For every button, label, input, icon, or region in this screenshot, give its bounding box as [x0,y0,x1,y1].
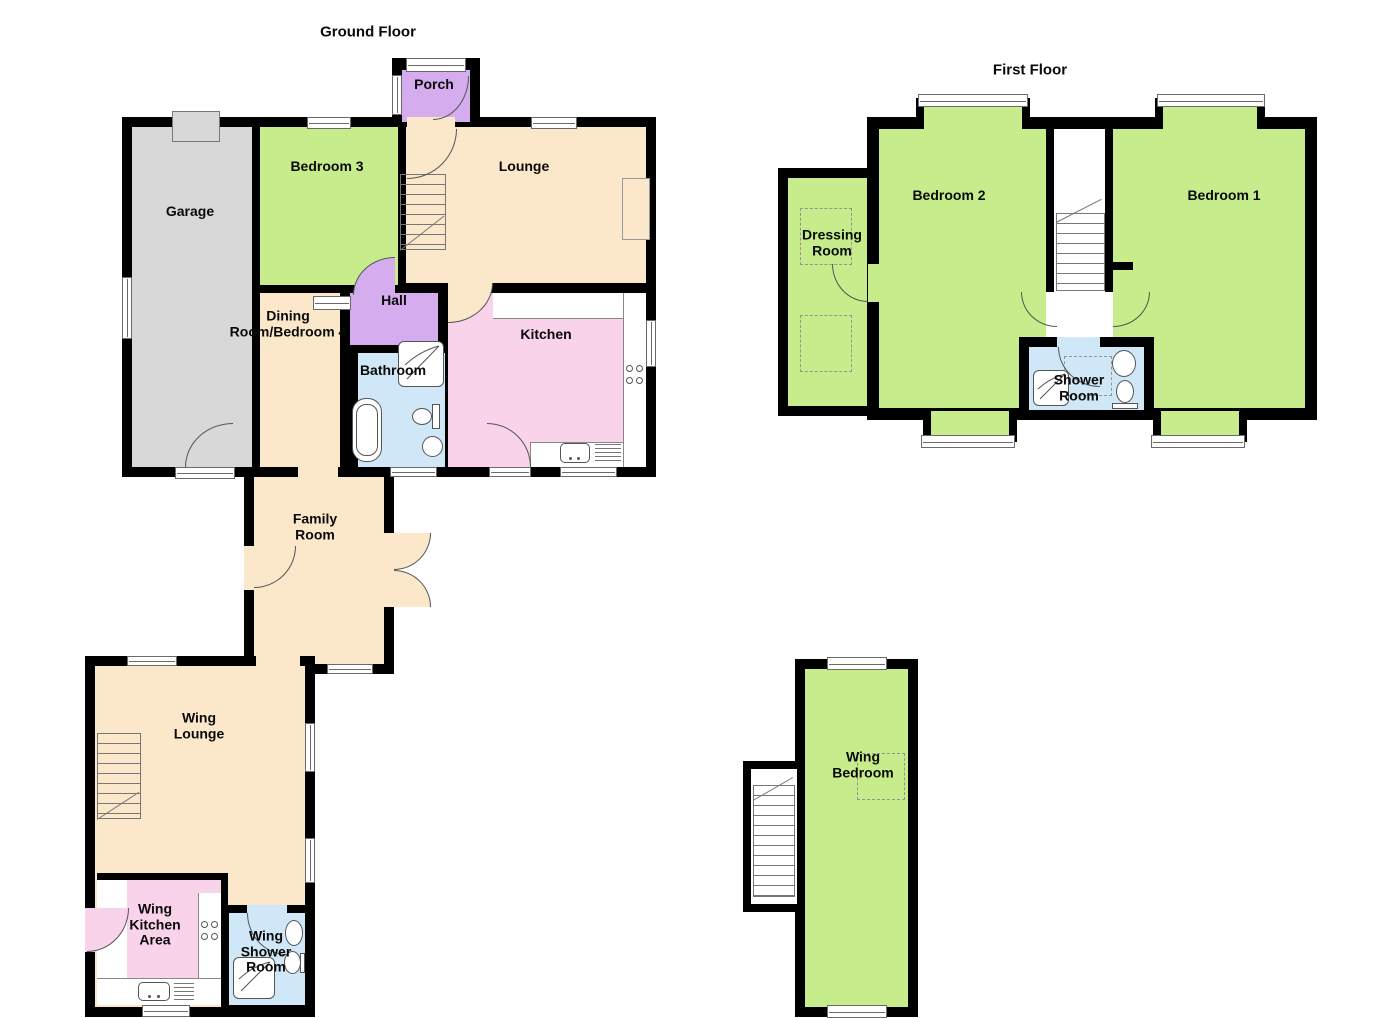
label-lounge: Lounge [499,159,550,175]
toilet-tank-icon [1112,403,1138,409]
window [305,723,315,772]
wardrobe-dashed [800,315,852,372]
opening-dressing [868,264,880,302]
label-porch: Porch [414,77,454,93]
porch-opening [407,117,455,129]
window [531,117,577,129]
bay-window [918,94,1028,107]
window [390,467,437,477]
fireplace [622,178,650,240]
window [327,664,373,674]
opening-dining-family [298,467,338,481]
french-door-arc [394,570,431,607]
kitchen-counter-top [493,293,623,319]
label-garage: Garage [166,204,214,220]
label-bedroom2: Bedroom 2 [912,188,985,204]
label-shower-room: Shower Room [1054,372,1105,403]
window [307,117,351,129]
opening-family-wing [256,656,300,678]
bathtub-icon [352,398,382,462]
opening-landing-bed1 [1105,292,1113,337]
room-wing-bedroom [805,669,908,1007]
stairs-wing [97,733,141,819]
label-wing-bedroom: Wing Bedroom [832,749,893,780]
room-garage [132,127,252,467]
window [127,656,177,666]
floor-plan: Ground Floor First Floor Porch Garage Be… [0,0,1400,1018]
label-bedroom3: Bedroom 3 [290,159,363,175]
opening-family-left [244,546,254,590]
drainer-icon [595,444,621,462]
toilet-icon [412,408,432,425]
stove-icon [625,364,645,390]
stove-icon [200,920,220,946]
window [406,58,466,72]
garage-door-threshold [175,467,235,479]
window [142,1005,190,1017]
first-floor-title: First Floor [993,63,1067,80]
window [392,75,402,115]
window [122,277,132,339]
label-family: Family Room [293,511,337,542]
bay-window [1157,94,1265,107]
label-bathroom: Bathroom [360,363,426,379]
ground-floor-title: Ground Floor [320,25,416,42]
label-kitchen: Kitchen [520,327,571,343]
toilet-tank-icon [300,953,305,973]
toilet-icon [1116,380,1134,403]
window [305,838,315,883]
window [646,320,656,367]
label-bedroom1: Bedroom 1 [1187,188,1260,204]
french-door-arc [394,533,431,570]
label-wing-kitchen: Wing Kitchen Area [129,901,180,948]
basin-icon [422,436,443,457]
wing-sink-icon [138,982,170,1001]
kitchen-door-threshold [489,467,531,477]
stairs-lounge [400,174,446,250]
opening-family-right [384,533,394,607]
stairs-first-floor [1056,213,1105,291]
label-wing-shower: Wing Shower Room [241,928,292,975]
label-hall: Hall [381,293,407,309]
window [560,467,617,477]
bay-window [1151,435,1245,448]
room-kitchen [448,293,623,467]
kitchen-sink-icon [560,443,590,463]
window [827,657,887,670]
label-wing-lounge: Wing Lounge [174,710,225,741]
wall [97,873,223,880]
bay-window [921,435,1015,448]
basin-icon [1112,350,1136,377]
drainer-icon [174,983,194,1000]
label-dining: Dining Room/Bedroom 4 [230,308,347,339]
toilet-tank-icon [432,404,440,429]
wall [1105,262,1133,270]
window [827,1005,887,1018]
chimney [172,111,220,142]
stairs-wing-bedroom [753,785,795,897]
label-dressing: Dressing Room [802,227,862,258]
